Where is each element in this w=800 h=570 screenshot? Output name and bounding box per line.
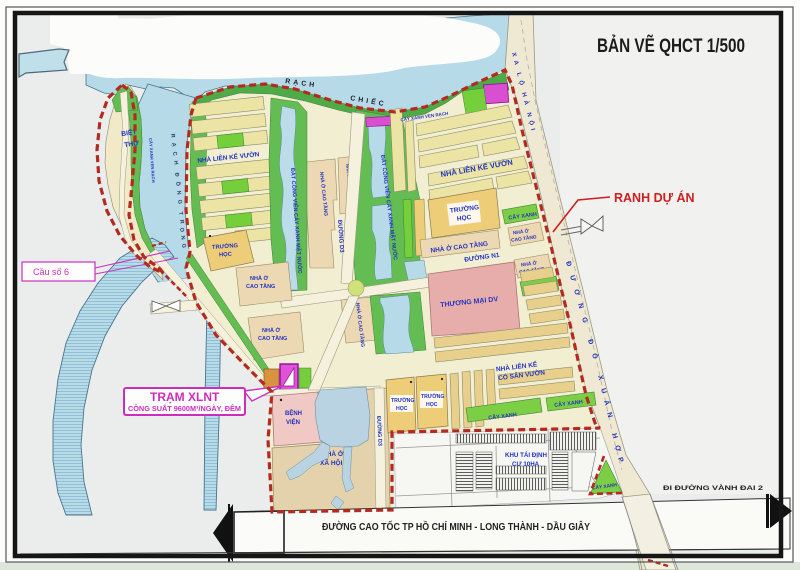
svg-text:ĐI ĐƯỜNG VÀNH ĐAI 2: ĐI ĐƯỜNG VÀNH ĐAI 2 bbox=[663, 483, 764, 492]
svg-text:Cầu số 6: Cầu số 6 bbox=[33, 267, 69, 277]
svg-text:BẢN VẼ QHCT 1/500: BẢN VẼ QHCT 1/500 bbox=[597, 35, 745, 57]
svg-text:KHU TÁI ĐỊNH: KHU TÁI ĐỊNH bbox=[505, 452, 547, 459]
svg-text:CƯ 10HA: CƯ 10HA bbox=[512, 461, 540, 468]
svg-text:HỌC: HỌC bbox=[396, 406, 408, 412]
svg-text:NHÀ Ở: NHÀ Ở bbox=[250, 275, 268, 282]
svg-text:ĐƯỜNG CAO TỐC TP HỒ CHÍ MINH -: ĐƯỜNG CAO TỐC TP HỒ CHÍ MINH - LONG THÀN… bbox=[322, 519, 590, 533]
svg-text:CAO TẦNG: CAO TẦNG bbox=[258, 335, 287, 342]
svg-text:VIỆN: VIỆN bbox=[286, 418, 300, 426]
svg-text:HỌC: HỌC bbox=[426, 402, 438, 408]
svg-text:RANH DỰ ÁN: RANH DỰ ÁN bbox=[614, 190, 695, 205]
svg-text:BỆNH: BỆNH bbox=[285, 409, 302, 417]
svg-text:TRẠM XLNT: TRẠM XLNT bbox=[150, 390, 220, 404]
svg-text:TRƯỜNG: TRƯỜNG bbox=[391, 396, 414, 404]
svg-text:CAO TẦNG: CAO TẦNG bbox=[246, 283, 275, 290]
svg-text:NHÀ Ở: NHÀ Ở bbox=[262, 327, 280, 334]
svg-text:TRƯỜNG: TRƯỜNG bbox=[421, 392, 444, 400]
svg-text:HỌC: HỌC bbox=[219, 252, 233, 259]
